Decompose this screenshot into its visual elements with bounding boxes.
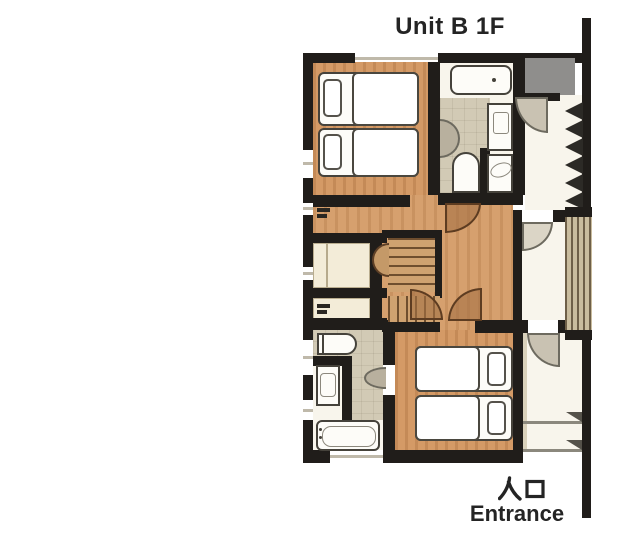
pillow <box>323 134 342 170</box>
wall <box>303 375 313 400</box>
wall <box>382 230 440 238</box>
wall <box>303 450 330 463</box>
pillow <box>487 352 506 386</box>
fixture-mark <box>317 310 327 314</box>
window <box>330 455 385 458</box>
wall <box>428 62 440 195</box>
entry-closet-block <box>525 58 575 95</box>
fixture-mark <box>317 304 330 308</box>
wall <box>513 58 525 195</box>
bathtub-inner <box>322 426 376 447</box>
wall <box>313 195 410 207</box>
corridor-edge <box>523 333 527 450</box>
bed-blanket <box>415 395 480 441</box>
fixture-mark <box>317 208 330 212</box>
window <box>303 356 313 359</box>
entrance-label-jp <box>498 475 546 502</box>
window <box>355 57 438 60</box>
bed-blanket <box>415 346 480 392</box>
toilet <box>452 152 480 193</box>
wall <box>383 330 395 365</box>
wall <box>383 395 395 463</box>
closet-upper <box>313 243 370 288</box>
bed-blanket <box>352 72 419 126</box>
wall <box>385 450 523 463</box>
pillow <box>487 401 506 435</box>
step-hatch <box>566 412 582 422</box>
sink-basin <box>493 112 509 134</box>
bed-blanket <box>352 128 419 177</box>
toilet-tank <box>322 335 324 353</box>
closet-divider <box>326 243 328 288</box>
wall <box>513 222 522 332</box>
faucet-dot <box>319 436 322 439</box>
bathtub <box>450 65 512 95</box>
shoe-rack-sawtooth <box>563 102 583 209</box>
window <box>303 207 313 210</box>
wall <box>565 330 592 340</box>
deck-stripes <box>565 217 592 330</box>
wall <box>513 210 522 222</box>
window <box>303 162 313 165</box>
bathtub-drain <box>492 78 496 82</box>
staircase-upper-flight <box>388 238 435 292</box>
wall <box>303 53 313 150</box>
wall <box>342 356 352 420</box>
sink-basin <box>320 373 336 397</box>
pillow <box>323 79 342 117</box>
wall <box>565 207 592 217</box>
wall <box>513 322 523 453</box>
floor-plan: Unit B 1F <box>0 0 618 541</box>
window <box>303 409 313 412</box>
entrance-label-en: Entrance <box>460 501 574 527</box>
faucet-dot <box>319 428 322 431</box>
unit-title: Unit B 1F <box>375 13 525 41</box>
fixture-mark <box>317 214 327 218</box>
window <box>303 272 313 275</box>
wall <box>513 320 528 333</box>
wall <box>303 178 313 203</box>
wall <box>435 230 442 298</box>
step-hatch <box>566 440 582 450</box>
